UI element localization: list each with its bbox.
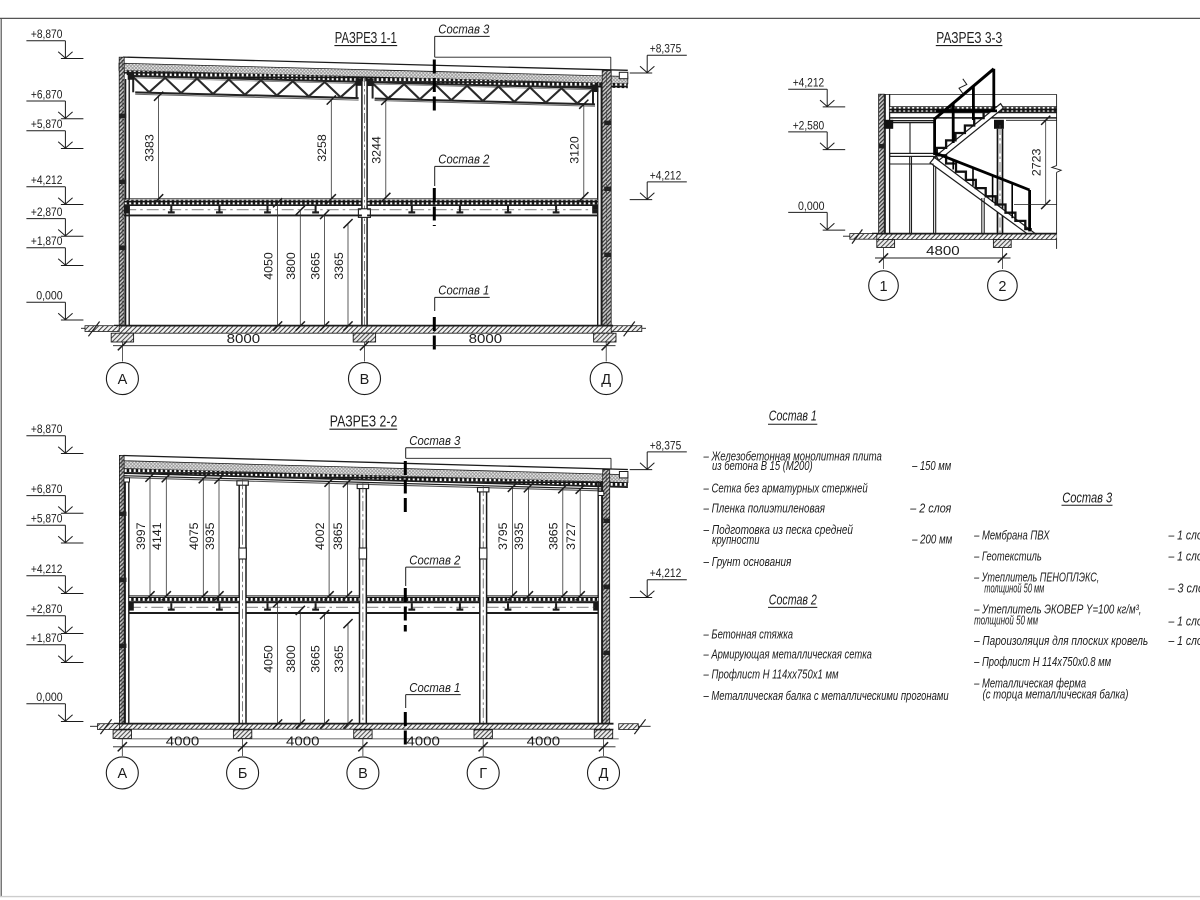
svg-text:3365: 3365	[332, 252, 346, 280]
svg-text:В: В	[360, 372, 370, 388]
svg-text:из бетона В 15 (М200): из бетона В 15 (М200)	[712, 459, 813, 473]
svg-text:Состав 1: Состав 1	[769, 408, 817, 424]
svg-text:8000: 8000	[227, 331, 261, 346]
svg-text:толщиной 50 мм: толщиной 50 мм	[984, 581, 1044, 595]
svg-text:4800: 4800	[926, 243, 960, 258]
svg-text:РАЗРЕЗ 1-1: РАЗРЕЗ 1-1	[335, 30, 397, 47]
svg-text:Д: Д	[599, 766, 609, 782]
svg-text:3997: 3997	[134, 522, 148, 550]
svg-text:4002: 4002	[313, 522, 327, 550]
svg-text:– 150 мм: – 150 мм	[911, 459, 951, 473]
svg-text:+6,870: +6,870	[31, 87, 63, 101]
svg-text:4141: 4141	[150, 522, 164, 550]
svg-text:+2,580: +2,580	[793, 118, 825, 132]
svg-text:4000: 4000	[527, 733, 561, 748]
svg-text:– 1 слой: – 1 слой	[1168, 615, 1200, 629]
svg-text:+1,870: +1,870	[31, 234, 63, 248]
svg-text:3665: 3665	[308, 645, 322, 673]
svg-text:– Сетка без арматурных стержне: – Сетка без арматурных стержней	[703, 482, 868, 496]
svg-text:– 2 слоя: – 2 слоя	[909, 502, 951, 516]
svg-text:4075: 4075	[187, 522, 201, 550]
svg-text:– 1 слой: – 1 слой	[1168, 550, 1200, 564]
svg-text:3800: 3800	[284, 252, 298, 280]
svg-text:+8,375: +8,375	[650, 42, 682, 56]
svg-text:3244: 3244	[370, 136, 384, 164]
svg-text:– Профлист Н 114хх750х1 мм: – Профлист Н 114хх750х1 мм	[703, 668, 839, 682]
svg-text:крупности: крупности	[712, 533, 760, 547]
svg-text:4050: 4050	[261, 252, 275, 280]
svg-text:– Пароизоляция для плоских кро: – Пароизоляция для плоских кровель	[973, 634, 1148, 648]
svg-text:1: 1	[879, 279, 887, 295]
svg-text:+5,870: +5,870	[31, 512, 63, 526]
svg-text:– Пленка полиэтиленовая: – Пленка полиэтиленовая	[703, 502, 825, 516]
svg-text:4000: 4000	[166, 733, 200, 748]
svg-text:3665: 3665	[308, 252, 322, 280]
svg-text:3865: 3865	[331, 522, 345, 550]
svg-text:Состав 3: Состав 3	[1062, 490, 1112, 506]
svg-text:3935: 3935	[203, 522, 217, 550]
svg-text:– Геотекстиль: – Геотекстиль	[973, 550, 1041, 564]
svg-text:– 3 слоя: – 3 слоя	[1168, 582, 1200, 596]
svg-text:4000: 4000	[406, 733, 440, 748]
svg-text:Д: Д	[601, 372, 611, 388]
svg-text:толщиной 50 мм: толщиной 50 мм	[974, 614, 1038, 628]
svg-text:– 1 слой: – 1 слой	[1168, 529, 1200, 543]
svg-text:Состав 2: Состав 2	[409, 552, 461, 567]
svg-text:3120: 3120	[568, 136, 582, 164]
svg-text:+8,870: +8,870	[31, 27, 63, 41]
svg-text:4000: 4000	[286, 733, 320, 748]
svg-text:3727: 3727	[564, 522, 578, 550]
svg-text:– 200 мм: – 200 мм	[911, 533, 952, 547]
svg-text:2: 2	[998, 279, 1006, 295]
svg-text:– Грунт основания: – Грунт основания	[703, 555, 792, 569]
svg-text:Состав 2: Состав 2	[438, 152, 490, 167]
svg-text:2723: 2723	[1030, 148, 1044, 176]
svg-text:3383: 3383	[142, 134, 156, 162]
svg-text:+4,212: +4,212	[650, 566, 682, 580]
svg-text:0,000: 0,000	[798, 199, 825, 213]
svg-text:Состав 1: Состав 1	[438, 283, 489, 298]
svg-text:А: А	[117, 766, 127, 782]
svg-text:3800: 3800	[284, 645, 298, 673]
svg-text:(с торца металлическая балка): (с торца металлическая балка)	[983, 688, 1129, 702]
svg-text:0,000: 0,000	[36, 289, 63, 303]
svg-text:3365: 3365	[332, 645, 346, 673]
svg-text:3795: 3795	[496, 522, 510, 550]
svg-text:+8,870: +8,870	[31, 422, 63, 436]
svg-text:8000: 8000	[469, 331, 503, 346]
svg-text:Состав 3: Состав 3	[438, 22, 490, 37]
svg-text:Г: Г	[479, 766, 487, 782]
svg-text:+4,212: +4,212	[31, 173, 63, 187]
svg-text:– Армирующая металлическая сет: – Армирующая металлическая сетка	[703, 648, 872, 662]
svg-text:+5,870: +5,870	[31, 117, 63, 131]
svg-text:– 1 слой: – 1 слой	[1168, 634, 1200, 648]
svg-text:Состав 2: Состав 2	[769, 593, 817, 609]
svg-text:РАЗРЕЗ 2-2: РАЗРЕЗ 2-2	[330, 414, 398, 431]
svg-text:+2,870: +2,870	[31, 602, 63, 616]
svg-text:+2,870: +2,870	[31, 205, 63, 219]
svg-text:РАЗРЕЗ 3-3: РАЗРЕЗ 3-3	[936, 30, 1002, 47]
svg-text:3258: 3258	[315, 134, 329, 162]
svg-text:0,000: 0,000	[36, 690, 63, 704]
svg-text:В: В	[358, 766, 368, 782]
svg-text:3935: 3935	[512, 522, 526, 550]
svg-text:+1,870: +1,870	[31, 631, 63, 645]
svg-text:Состав 1: Состав 1	[409, 680, 460, 695]
svg-text:– Мембрана ПВХ: – Мембрана ПВХ	[973, 529, 1050, 543]
svg-text:+6,870: +6,870	[31, 482, 63, 496]
svg-text:А: А	[118, 372, 128, 388]
svg-text:– Профлист Н 114х750х0.8 мм: – Профлист Н 114х750х0.8 мм	[973, 655, 1111, 669]
svg-text:Б: Б	[238, 766, 248, 782]
svg-text:Состав 3: Состав 3	[409, 433, 461, 448]
svg-text:+4,212: +4,212	[650, 168, 682, 182]
svg-text:+4,212: +4,212	[793, 76, 825, 90]
svg-text:4050: 4050	[261, 645, 275, 673]
svg-text:– Бетонная стяжка: – Бетонная стяжка	[703, 628, 793, 642]
svg-text:3865: 3865	[547, 522, 561, 550]
svg-text:+4,212: +4,212	[31, 562, 63, 576]
svg-text:– Металлическая балка с металл: – Металлическая балка с металлическими п…	[703, 689, 949, 703]
svg-text:+8,375: +8,375	[650, 438, 682, 452]
